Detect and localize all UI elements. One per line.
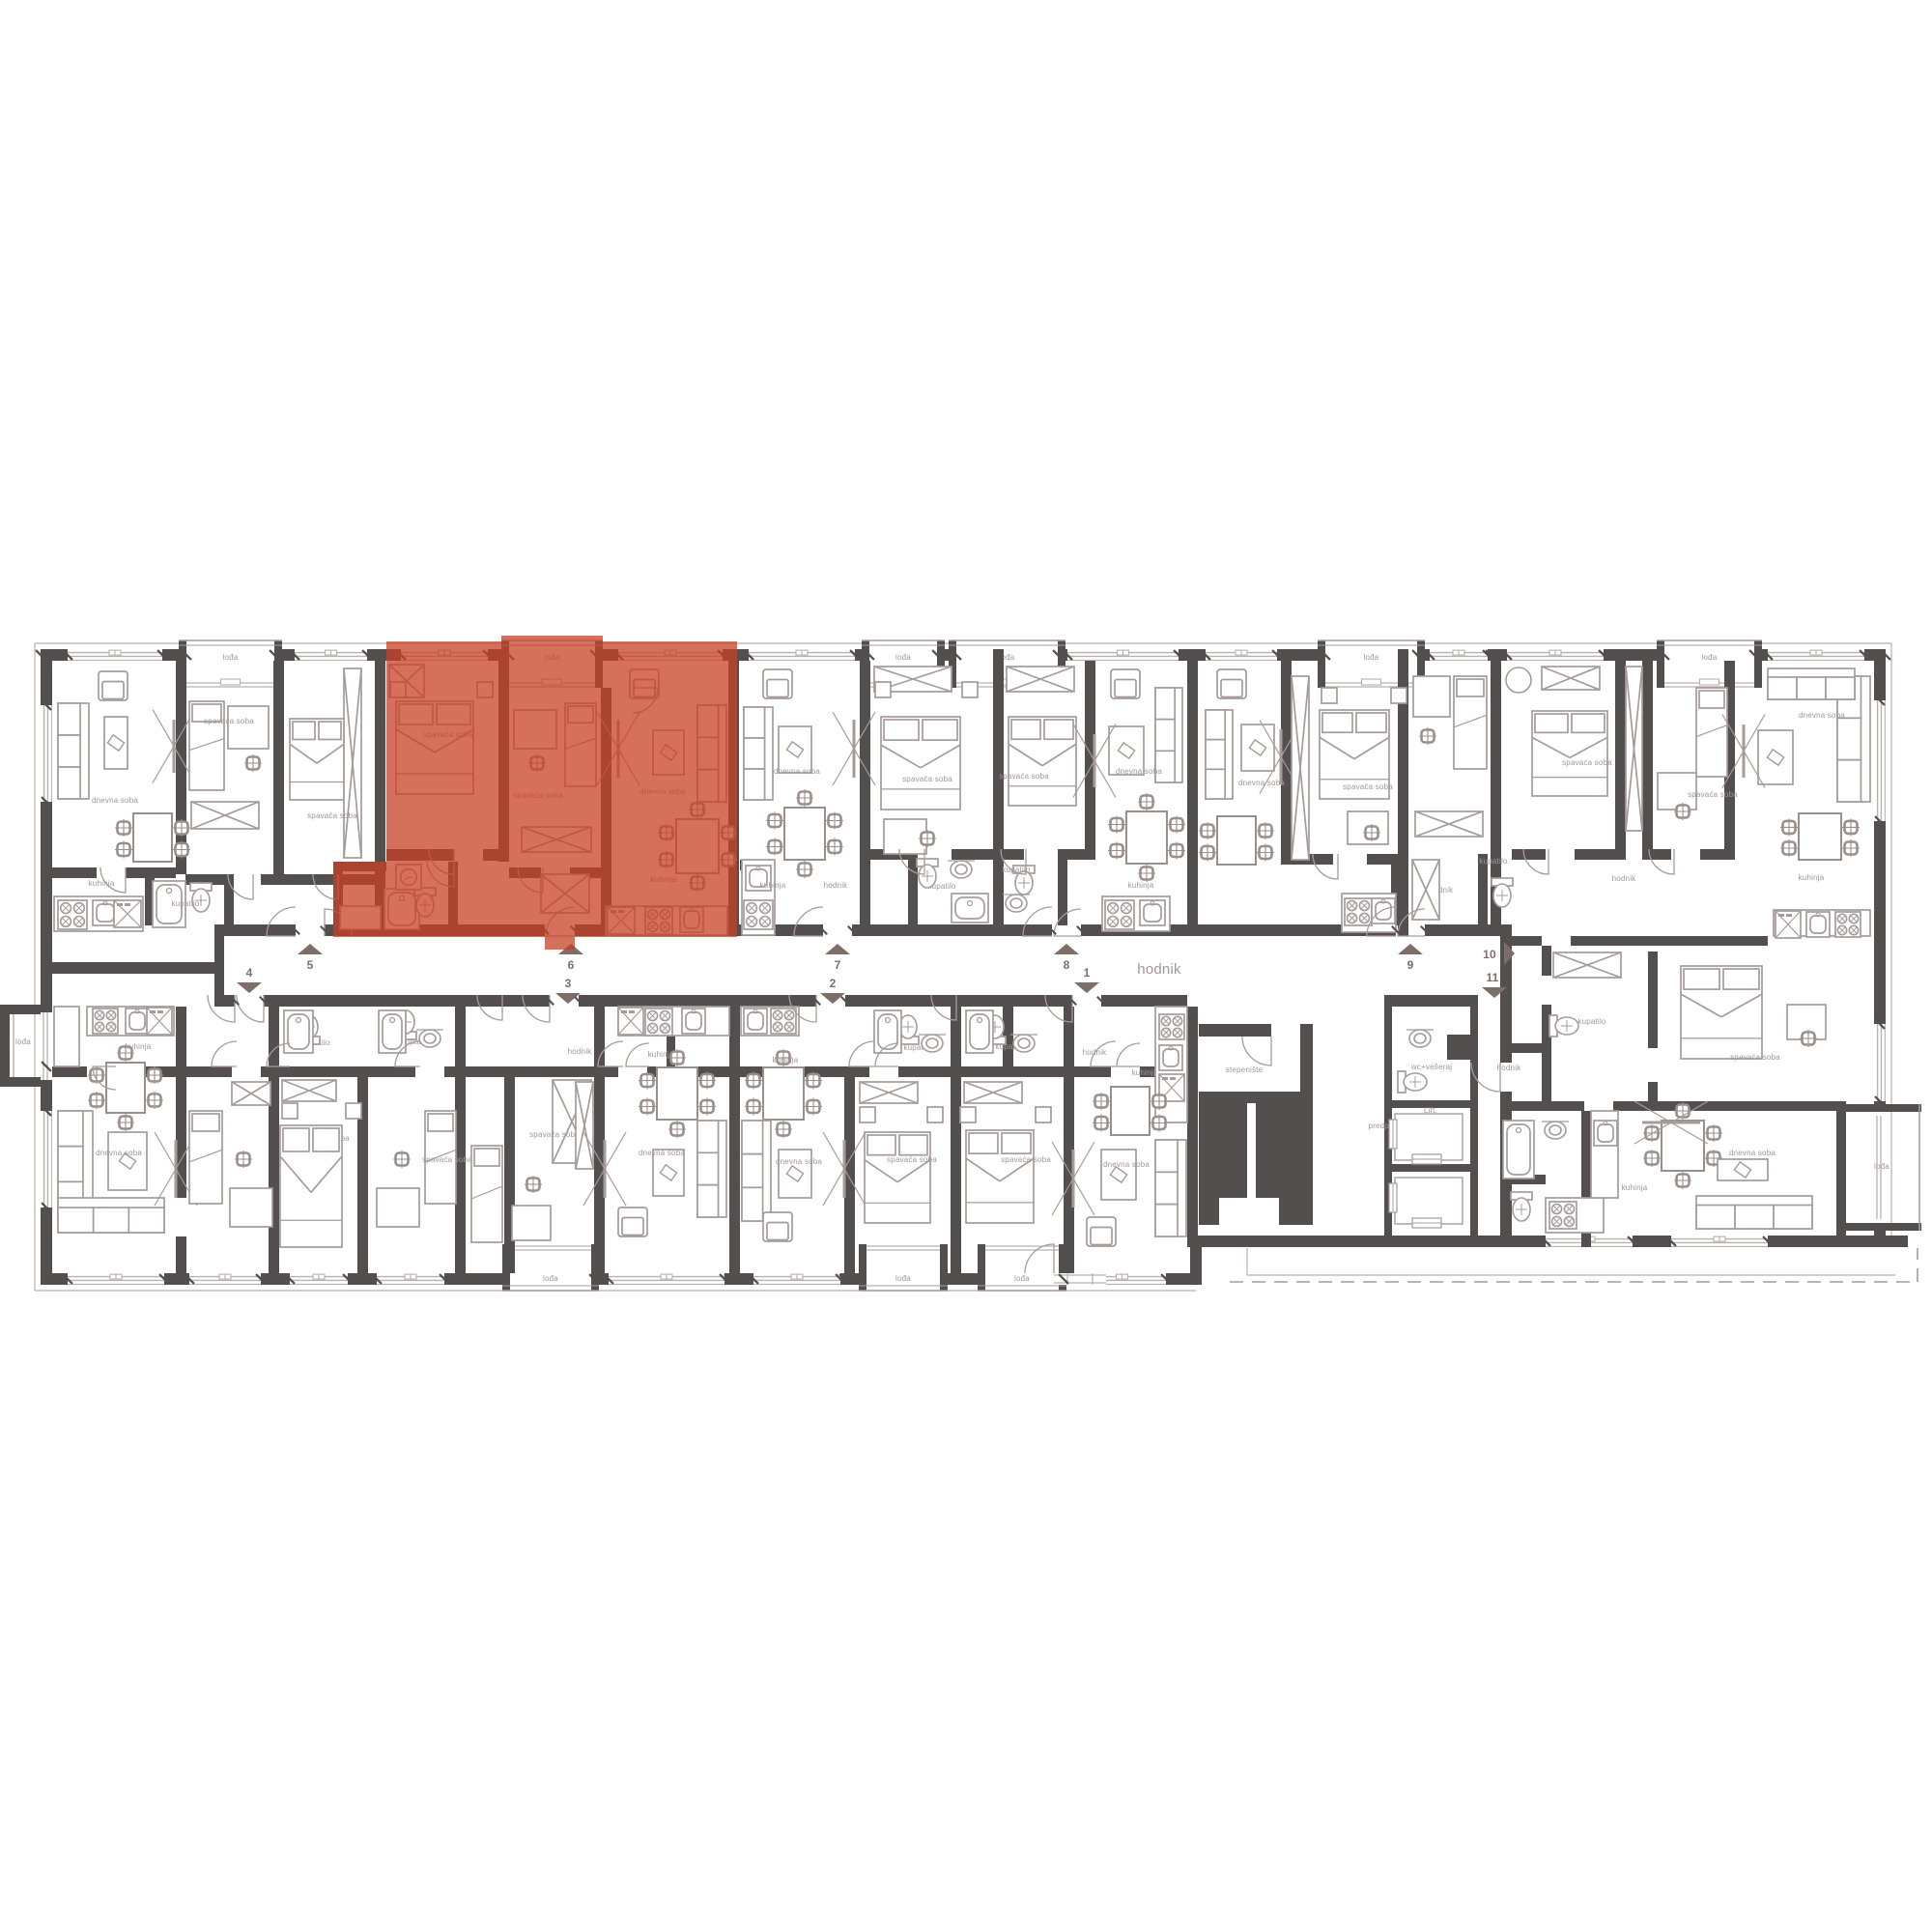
svg-text:spavaća soba: spavaća soba	[999, 772, 1049, 781]
svg-text:dnevna soba: dnevna soba	[96, 1149, 142, 1157]
svg-text:dnevna soba: dnevna soba	[1729, 1149, 1776, 1157]
svg-text:kuhinja: kuhinja	[1128, 881, 1154, 890]
svg-text:dnevna soba: dnevna soba	[639, 1149, 685, 1157]
svg-text:dnevna soba: dnevna soba	[1103, 1160, 1150, 1169]
svg-text:dnevna soba: dnevna soba	[1116, 767, 1162, 776]
svg-text:kupatilo: kupatilo	[1479, 857, 1508, 866]
svg-text:lođa: lođa	[1014, 1274, 1030, 1283]
svg-text:stepenište: stepenište	[1226, 1065, 1264, 1074]
svg-text:dnevna soba: dnevna soba	[1238, 779, 1285, 787]
svg-text:5: 5	[307, 958, 314, 972]
svg-text:kuhinja: kuhinja	[1132, 1068, 1158, 1077]
svg-text:dnevna soba: dnevna soba	[776, 1157, 822, 1166]
svg-text:7: 7	[835, 958, 841, 972]
svg-text:lođa: lođa	[895, 1274, 911, 1283]
svg-text:11: 11	[1486, 971, 1498, 984]
svg-text:9: 9	[1407, 958, 1414, 972]
svg-text:lođa: lođa	[223, 653, 239, 662]
svg-text:lođa: lođa	[1364, 653, 1379, 662]
svg-text:hodnik: hodnik	[1137, 961, 1181, 978]
svg-text:kuhinja: kuhinja	[760, 881, 786, 890]
svg-text:spavaća soba: spavaća soba	[902, 775, 952, 783]
svg-text:kupatilo: kupatilo	[171, 899, 200, 908]
svg-text:8: 8	[1064, 958, 1070, 972]
svg-text:lođa: lođa	[1702, 653, 1718, 662]
svg-text:1: 1	[1084, 966, 1091, 980]
svg-text:spavaća soba: spavaća soba	[204, 717, 254, 725]
svg-text:spavaća soba: spavaća soba	[1688, 790, 1738, 799]
svg-text:spavaća soba: spavaća soba	[307, 811, 357, 820]
svg-text:kuhinja: kuhinja	[126, 1042, 152, 1051]
svg-text:hodnik: hodnik	[568, 1047, 593, 1056]
svg-text:dnevna soba: dnevna soba	[1799, 711, 1845, 720]
svg-text:kuhinja: kuhinja	[1622, 1183, 1648, 1192]
svg-text:2: 2	[830, 977, 837, 990]
svg-text:hodnik: hodnik	[1612, 874, 1637, 883]
svg-text:wc+vešeraj: wc+vešeraj	[1410, 1063, 1452, 1071]
svg-text:spavaća soba: spavaća soba	[1001, 1155, 1051, 1164]
svg-text:spavaća soba: spavaća soba	[1730, 1053, 1780, 1062]
svg-text:6: 6	[568, 958, 575, 972]
svg-text:lođa: lođa	[895, 653, 911, 662]
svg-text:kupatilo: kupatilo	[1577, 1017, 1606, 1026]
svg-text:10: 10	[1483, 948, 1496, 961]
svg-text:spavaća soba: spavaća soba	[422, 1155, 472, 1164]
svg-text:dnevna soba: dnevna soba	[92, 796, 138, 805]
svg-text:3: 3	[565, 977, 572, 990]
svg-text:dnevna soba: dnevna soba	[774, 767, 820, 776]
svg-text:lođa: lođa	[543, 1274, 558, 1283]
svg-text:kuhinja: kuhinja	[773, 1056, 799, 1065]
svg-text:spavaća soba: spavaća soba	[1343, 782, 1393, 791]
svg-text:4: 4	[246, 966, 253, 980]
svg-text:kuhinja: kuhinja	[89, 879, 115, 888]
svg-text:spavaća soba: spavaća soba	[887, 1155, 937, 1164]
svg-text:spavaća soba: spavaća soba	[1562, 758, 1612, 767]
svg-text:hodnik: hodnik	[824, 881, 849, 890]
svg-text:kuhinja: kuhinja	[1799, 873, 1825, 882]
svg-text:lođa: lođa	[15, 1037, 31, 1046]
svg-text:lođa: lođa	[1874, 1162, 1889, 1171]
svg-text:spavaća soba: spavaća soba	[529, 1130, 580, 1139]
